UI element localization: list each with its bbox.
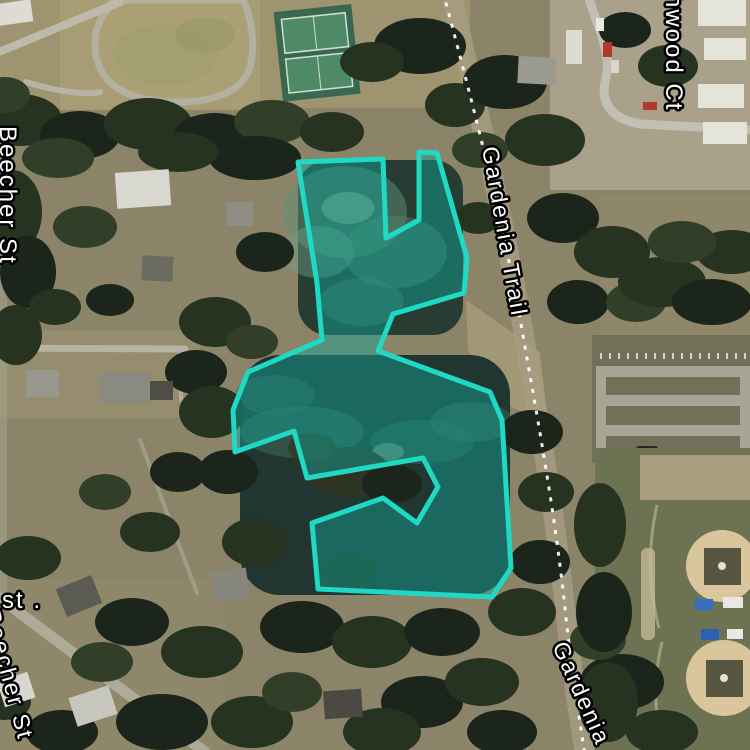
running-track: [95, 0, 253, 102]
street-label-st-fragment: st .: [2, 587, 42, 614]
car-red: [603, 42, 612, 57]
street-label-hwood-ct: hwood Ct: [660, 0, 687, 111]
dugout: [695, 599, 713, 610]
street-label-beecher-st: Beecher St: [0, 126, 21, 265]
aerial-map-svg: Beecher St hwood Ct Gardenia Trail Garde…: [0, 0, 750, 750]
parking-lot: [592, 335, 750, 463]
car-red: [643, 102, 657, 110]
map-canvas[interactable]: Beecher St hwood Ct Gardenia Trail Garde…: [0, 0, 750, 750]
